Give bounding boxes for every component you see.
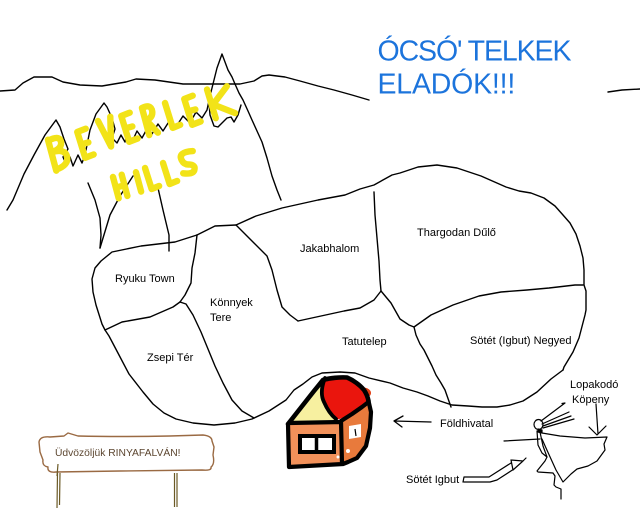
svg-text:Tatutelep: Tatutelep [342,336,387,348]
svg-text:Sötét Igbut: Sötét Igbut [406,474,459,486]
svg-text:Üdvözöljük RINYAFALVÁN!: Üdvözöljük RINYAFALVÁN! [55,446,181,459]
svg-text:Köpeny: Köpeny [572,394,610,406]
svg-text:Thargodan Dűlő: Thargodan Dűlő [417,227,496,239]
svg-text:Ryuku Town: Ryuku Town [115,273,175,285]
svg-text:ÓCSÓ' TELKEK: ÓCSÓ' TELKEK [378,36,572,68]
svg-text:Lopakodó: Lopakodó [570,379,618,391]
svg-text:Sötét (Igbut) Negyed: Sötét (Igbut) Negyed [470,335,572,347]
svg-text:ELADÓK!!!: ELADÓK!!! [378,69,516,101]
svg-text:Tere: Tere [210,312,231,324]
svg-text:Jakabhalom: Jakabhalom [300,243,359,255]
svg-text:Zsepi Tér: Zsepi Tér [147,352,194,364]
svg-text:Földhivatal: Földhivatal [440,418,493,430]
svg-text:Könnyek: Könnyek [210,297,253,309]
